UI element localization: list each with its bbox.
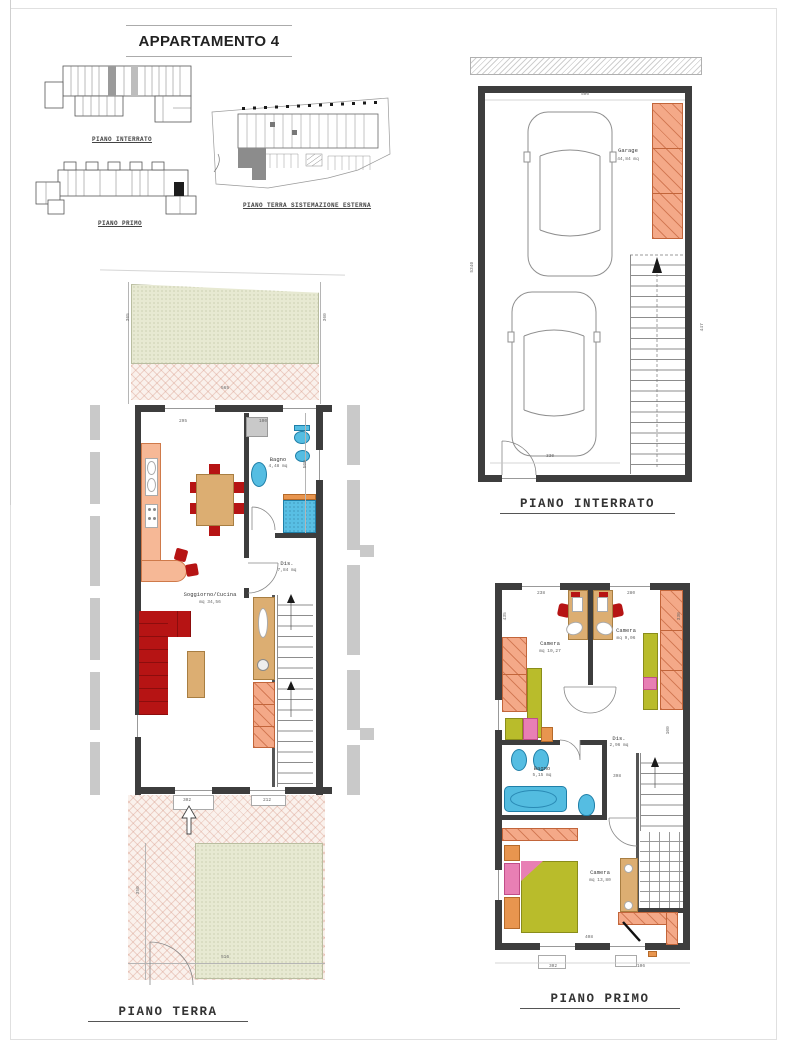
room-area: mq 10,27 xyxy=(530,650,570,655)
room-label: Bagno xyxy=(524,766,560,772)
site-plan xyxy=(208,92,393,204)
dim-label: 280 xyxy=(618,592,644,597)
site-top-markers xyxy=(242,101,377,110)
room-label: Camera xyxy=(606,628,646,634)
room-area: 44,84 mq xyxy=(602,158,654,163)
door-arc xyxy=(560,740,580,760)
dim-label: 100 xyxy=(667,719,672,741)
dim-label: 408 xyxy=(576,936,602,941)
stairs-direction-arrow xyxy=(630,255,685,467)
site-shaded-cell xyxy=(270,122,275,127)
dim-label: 500 xyxy=(560,93,610,98)
site-hatch-lines xyxy=(307,154,322,166)
room-area: 2,96 mq xyxy=(605,744,633,749)
site-building xyxy=(238,114,378,148)
site-plan-label: PIANO TERRA SISTEMAZIONE ESTERNA xyxy=(218,202,396,209)
mini-plan-interrato xyxy=(35,60,205,136)
dim-label: 5340 xyxy=(471,252,476,282)
basement-caption: PIANO INTERRATO xyxy=(500,497,675,514)
dim-label: 398 xyxy=(604,775,630,780)
page-title: APPARTAMENTO 4 xyxy=(126,25,292,57)
car-symbol xyxy=(524,112,616,276)
door-arc xyxy=(590,687,616,713)
dim-label: 238 xyxy=(528,592,554,597)
dim-label: 447 xyxy=(701,314,706,340)
room-label: Garage xyxy=(602,148,654,154)
first-floor-caption: PIANO PRIMO xyxy=(520,992,680,1009)
room-area: 5,15 mq xyxy=(524,774,560,779)
site-highlighted-unit xyxy=(238,148,266,180)
room-label: Camera xyxy=(530,641,570,647)
room-area: mq 13,80 xyxy=(580,879,620,884)
stairs-direction-arrow xyxy=(651,757,659,788)
room-area: mq 9,06 xyxy=(606,637,646,642)
stairs-direction-arrow xyxy=(287,594,295,717)
north-arrow-icon xyxy=(182,806,196,834)
room-label: Dis. xyxy=(605,736,633,742)
mini-plan-outline xyxy=(45,66,191,122)
door-arc xyxy=(248,563,278,593)
page-frame-left-segment xyxy=(10,0,11,505)
mini-plan-primo xyxy=(28,156,200,218)
mini-plan1-label: PIANO INTERRATO xyxy=(72,136,172,143)
dim-label: 435 xyxy=(504,604,509,628)
dim-label: 106 xyxy=(628,965,654,970)
mini-plan2-label: PIANO PRIMO xyxy=(80,220,160,227)
mini-highlight-cell xyxy=(108,66,116,96)
first-floor-linework xyxy=(490,570,695,970)
drawing-sheet: APPARTAMENTO 4 PIANO INTERRATO xyxy=(0,0,787,1050)
dim-label: 330 xyxy=(530,455,570,460)
car-symbol xyxy=(508,292,600,456)
dim-label: 330 xyxy=(678,604,683,628)
room-label: Camera xyxy=(580,870,620,876)
basement-linework xyxy=(470,57,702,517)
gate-arc xyxy=(150,942,193,985)
mini-shaded-cell xyxy=(131,66,138,96)
dim-label: 302 xyxy=(540,965,566,970)
ground-caption: PIANO TERRA xyxy=(88,1005,248,1022)
door-arc xyxy=(252,507,275,530)
mini-highlight-cell xyxy=(174,182,184,196)
door-arc xyxy=(609,818,637,846)
section-mark xyxy=(623,922,640,941)
site-shaded-cell xyxy=(292,130,297,135)
door-arc xyxy=(564,687,590,713)
ground-linework xyxy=(88,278,378,988)
